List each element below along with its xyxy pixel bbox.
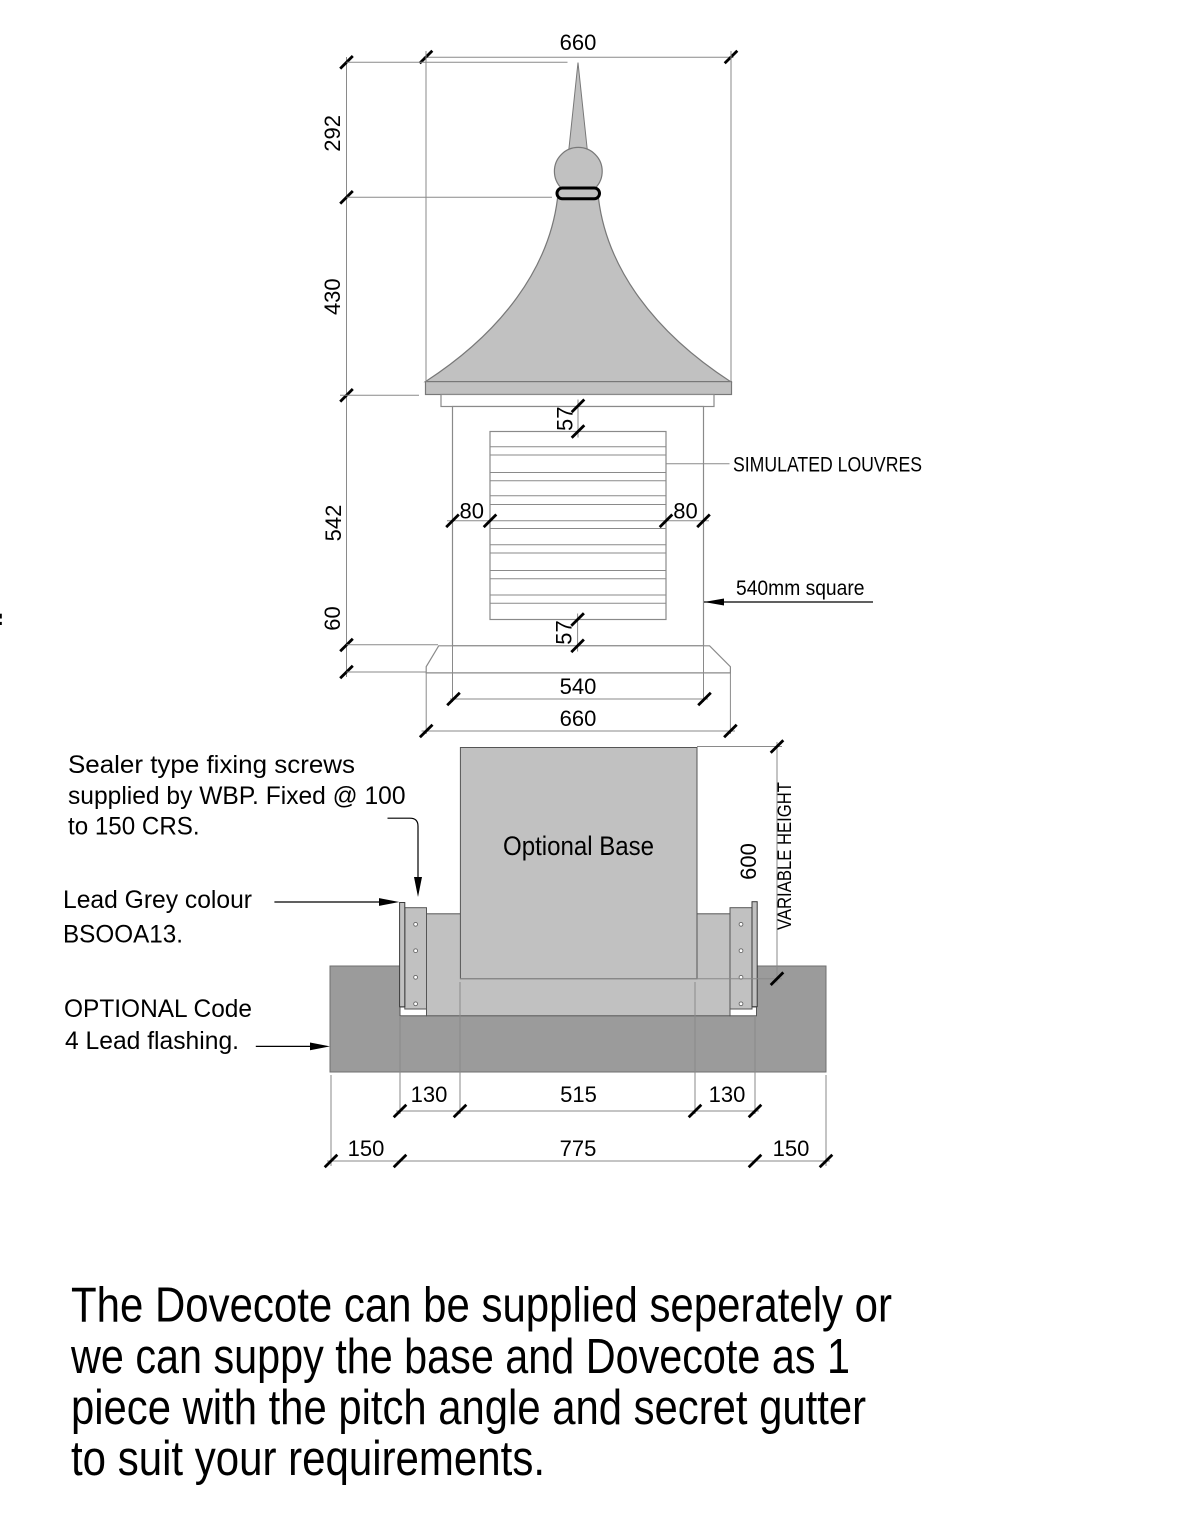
svg-text:VARIABLE HEIGHT: VARIABLE HEIGHT <box>775 782 796 930</box>
svg-text:292: 292 <box>320 115 345 152</box>
svg-text:4 Lead flashing.: 4 Lead flashing. <box>65 1027 239 1055</box>
svg-text:130: 130 <box>411 1082 448 1107</box>
svg-text:430: 430 <box>320 278 345 315</box>
svg-text:57: 57 <box>553 406 578 430</box>
svg-text:515: 515 <box>560 1082 597 1107</box>
svg-text:we can suppy the base and Dove: we can suppy the base and Dovecote as 1 <box>70 1330 850 1384</box>
svg-text:Optional Base: Optional Base <box>503 831 654 861</box>
svg-text:600: 600 <box>736 843 761 880</box>
svg-text:80: 80 <box>460 499 484 524</box>
svg-text:130: 130 <box>709 1082 746 1107</box>
svg-text:to 150 CRS.: to 150 CRS. <box>68 813 200 841</box>
svg-text:660: 660 <box>560 30 597 55</box>
svg-text:supplied by WBP. Fixed @ 100: supplied by WBP. Fixed @ 100 <box>68 782 406 810</box>
svg-text:Sealer type fixing screws: Sealer type fixing screws <box>68 751 355 779</box>
svg-text:piece with the pitch angle and: piece with the pitch angle and secret gu… <box>71 1381 866 1435</box>
svg-text:The Dovecote can be supplied s: The Dovecote can be supplied seperately … <box>71 1279 892 1333</box>
svg-text:57: 57 <box>552 620 577 644</box>
svg-text:150: 150 <box>773 1136 810 1161</box>
svg-text:660: 660 <box>560 706 597 731</box>
svg-text:Lead Grey colour: Lead Grey colour <box>63 886 252 914</box>
svg-text:540: 540 <box>560 674 597 699</box>
svg-text:80: 80 <box>673 499 697 524</box>
svg-text:BSOOA13.: BSOOA13. <box>63 920 183 948</box>
svg-text:SIMULATED LOUVRES: SIMULATED LOUVRES <box>733 454 922 477</box>
svg-text:540mm square: 540mm square <box>736 577 865 600</box>
svg-text:775: 775 <box>560 1136 597 1161</box>
svg-text:OPTIONAL Code: OPTIONAL Code <box>64 995 252 1023</box>
svg-text:542: 542 <box>321 505 346 542</box>
svg-text:150: 150 <box>348 1136 385 1161</box>
svg-text:60: 60 <box>320 606 345 630</box>
svg-text:to suit your requirements.: to suit your requirements. <box>71 1432 545 1486</box>
